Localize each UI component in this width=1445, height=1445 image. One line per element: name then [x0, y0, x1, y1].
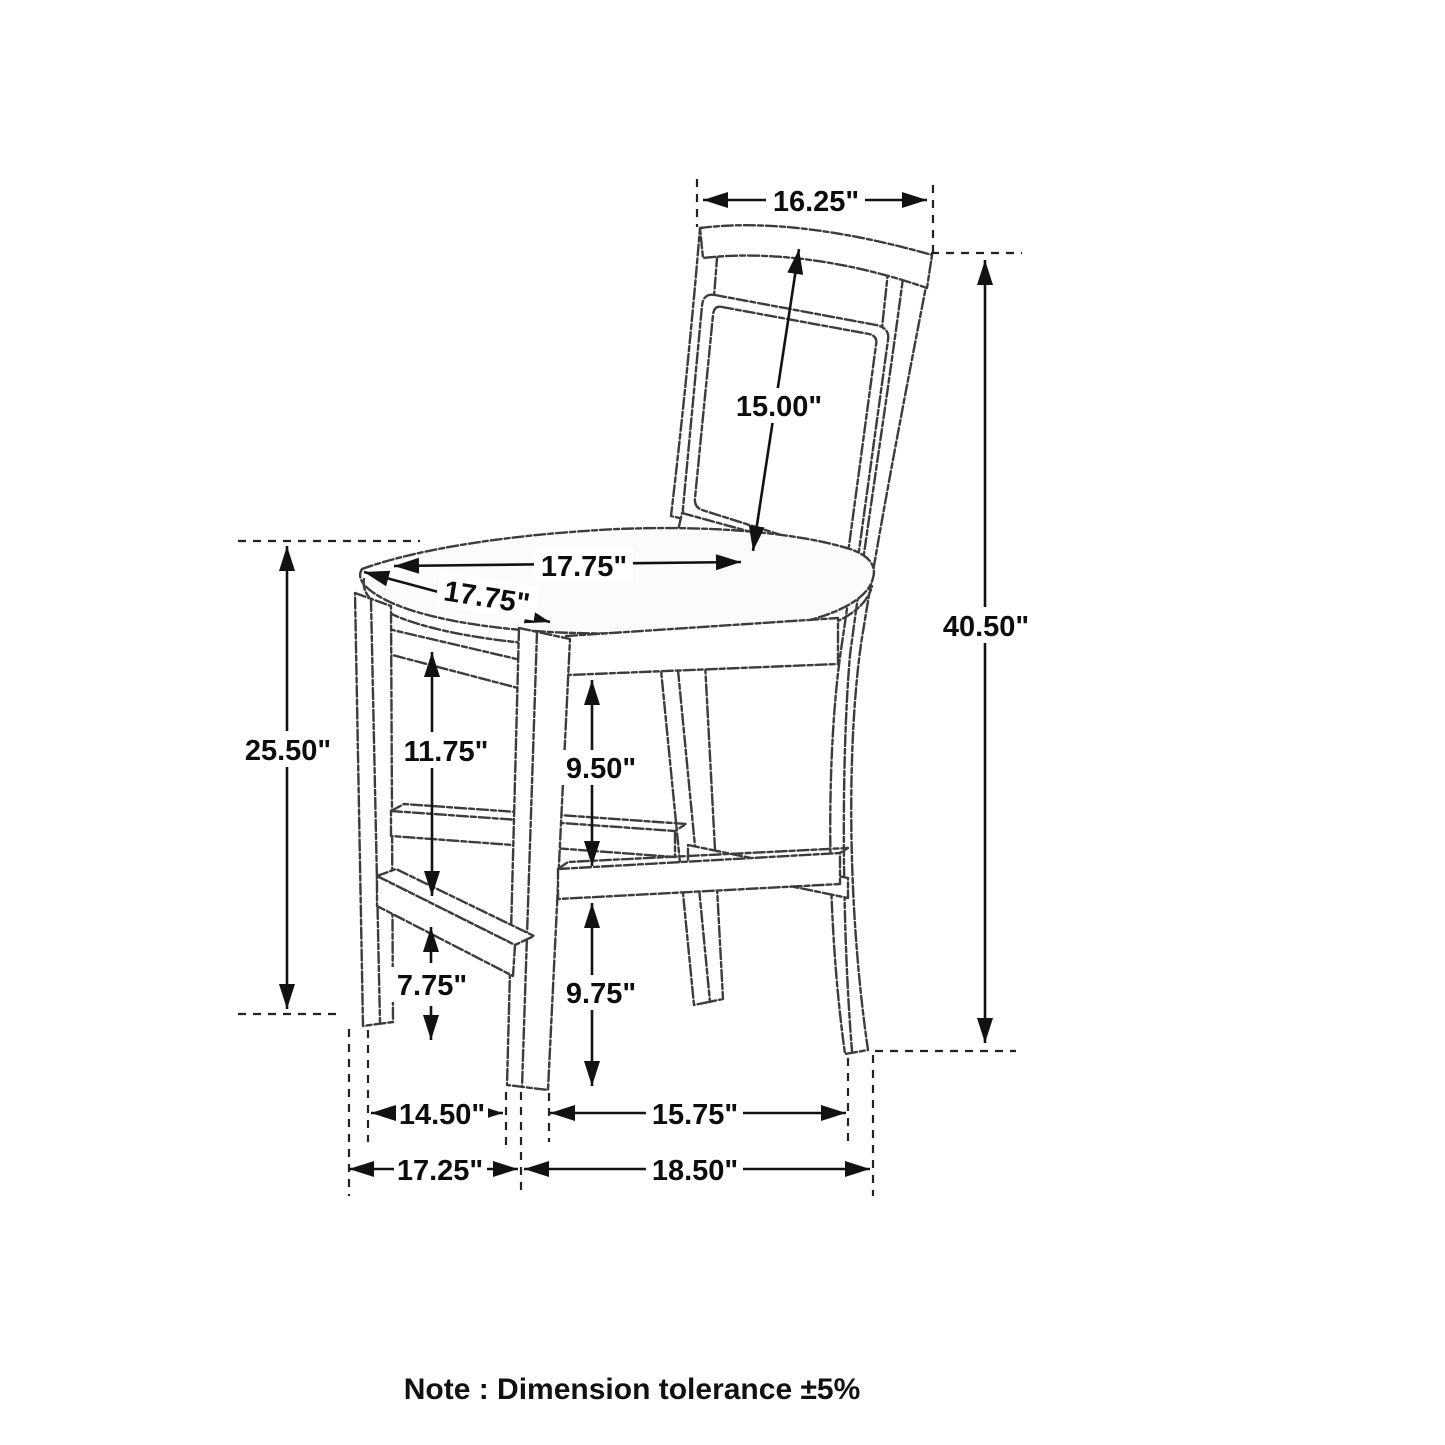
front-left-leg	[355, 593, 393, 1026]
dim-label-back-panel-height: 15.00"	[736, 391, 822, 423]
dim-side-stretcher-to-floor: 9.75"	[558, 903, 644, 1086]
crest-rail	[700, 225, 932, 288]
dim-label-front-legs-inner-width: 14.50"	[399, 1099, 485, 1131]
dim-label-side-stretcher-to-floor: 9.75"	[566, 978, 636, 1010]
front-right-leg	[507, 628, 570, 1090]
chair-drawing	[355, 225, 932, 1090]
dim-label-seat-rail-to-side-stretcher: 9.50"	[566, 753, 636, 785]
diagram-canvas: 16.25" 15.00" 40.50" 17.75" 17.	[0, 0, 1445, 1445]
dim-label-front-stretcher-to-floor: 7.75"	[397, 970, 467, 1002]
dim-label-overall-height: 40.50"	[943, 611, 1029, 643]
dim-front-width-overall: 17.25"	[349, 1153, 518, 1187]
dim-label-floor-to-seat-height: 25.50"	[245, 735, 331, 767]
chair-dimension-diagram: 16.25" 15.00" 40.50" 17.75" 17.	[0, 0, 1445, 1445]
dim-label-front-width-overall: 17.25"	[397, 1155, 483, 1187]
dim-seat-rail-to-front-stretcher: 11.75"	[393, 652, 497, 896]
dim-label-side-legs-inner-depth: 15.75"	[652, 1099, 738, 1131]
tolerance-note: Note : Dimension tolerance ±5%	[404, 1373, 861, 1406]
front-seat-apron	[381, 628, 521, 688]
dim-side-depth-overall: 18.50"	[524, 1153, 870, 1187]
dim-side-legs-inner-depth: 15.75"	[550, 1097, 846, 1131]
dim-label-side-depth-overall: 18.50"	[652, 1155, 738, 1187]
dim-label-back-width-top: 16.25"	[773, 186, 859, 218]
dim-label-seat-width: 17.75"	[541, 551, 627, 583]
dim-front-legs-inner-width: 14.50"	[371, 1097, 503, 1131]
dim-label-seat-rail-to-front-stretcher: 11.75"	[404, 736, 489, 768]
